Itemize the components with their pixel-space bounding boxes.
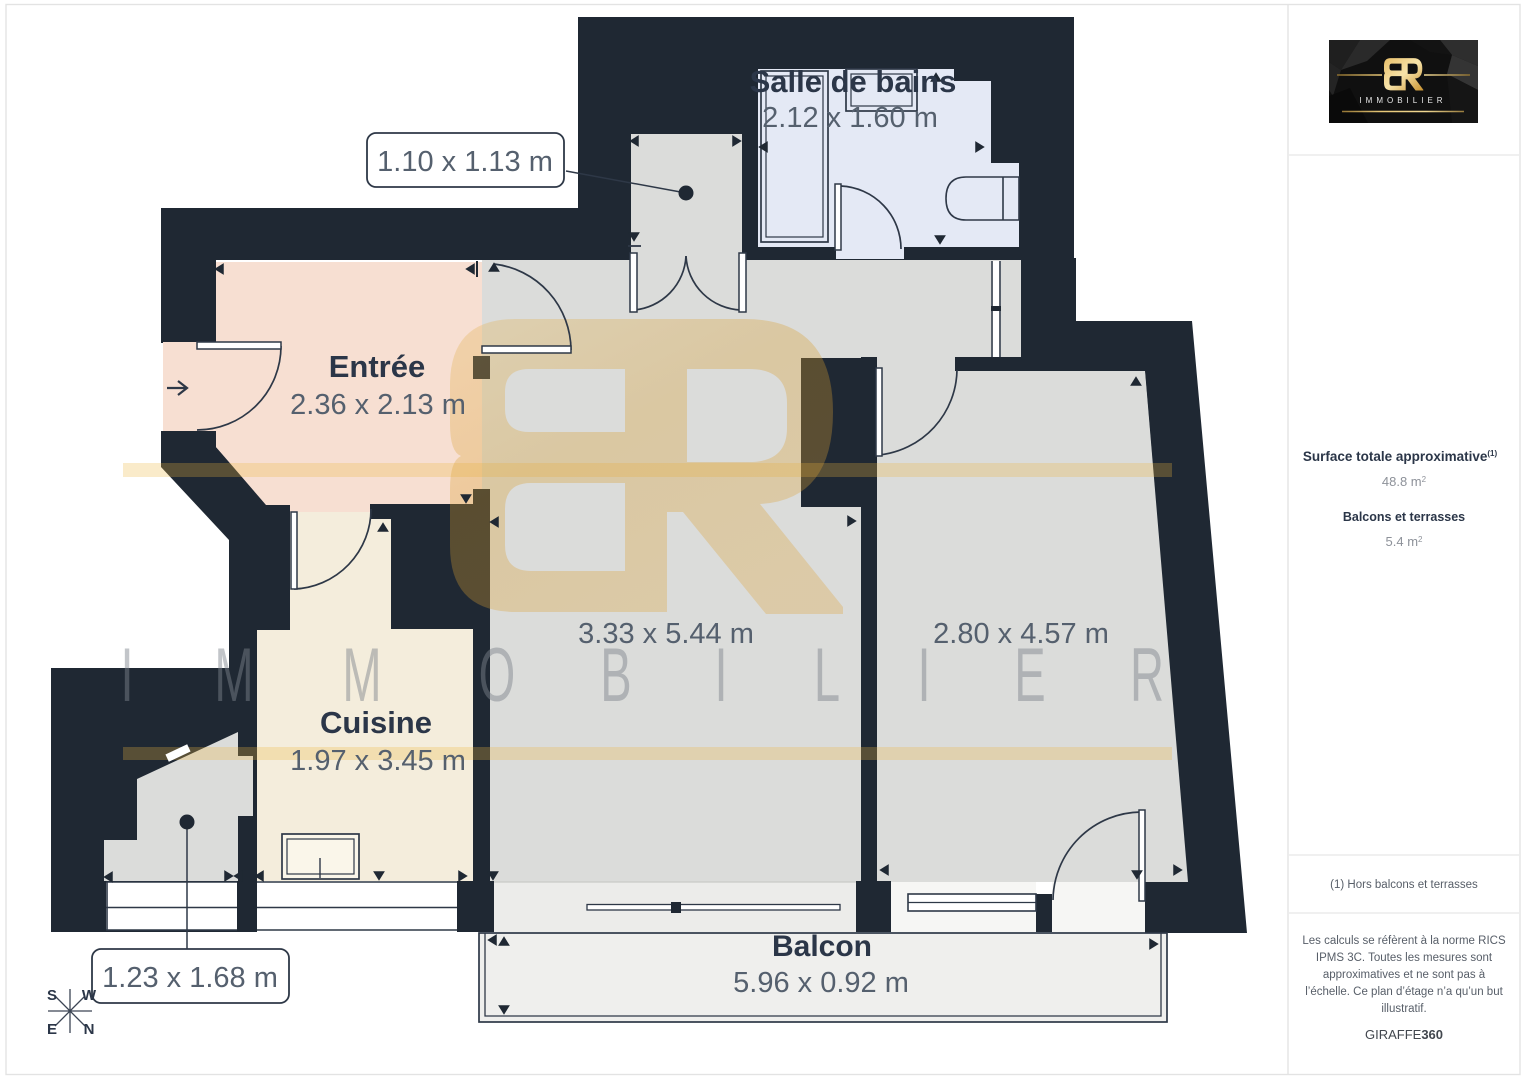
svg-text:5.96 x 0.92 m: 5.96 x 0.92 m: [733, 967, 909, 999]
svg-text:E: E: [47, 1021, 57, 1038]
svg-text:(1) Hors balcons et terrasses: (1) Hors balcons et terrasses: [1330, 879, 1478, 891]
svg-text:W: W: [82, 987, 97, 1004]
svg-text:48.8 m2: 48.8 m2: [1382, 474, 1427, 489]
svg-text:GIRAFFE360: GIRAFFE360: [1365, 1027, 1443, 1042]
svg-text:2.36 x 2.13 m: 2.36 x 2.13 m: [290, 389, 466, 421]
svg-text:1.23 x 1.68 m: 1.23 x 1.68 m: [102, 962, 278, 994]
svg-text:Entrée: Entrée: [329, 349, 425, 384]
svg-text:L: L: [814, 634, 840, 718]
svg-text:N: N: [84, 1021, 95, 1038]
svg-text:illustratif.: illustratif.: [1381, 1003, 1426, 1015]
svg-text:Les calculs se réfèrent à la n: Les calculs se réfèrent à la norme RICS: [1302, 935, 1506, 947]
svg-text:Surface totale approximative(1: Surface totale approximative(1): [1303, 449, 1498, 464]
svg-text:Balcon: Balcon: [772, 930, 872, 963]
svg-text:M: M: [214, 634, 253, 718]
svg-text:Cuisine: Cuisine: [320, 705, 432, 740]
svg-text:1.10 x 1.13 m: 1.10 x 1.13 m: [377, 146, 553, 178]
svg-text:3.33 x 5.44 m: 3.33 x 5.44 m: [578, 618, 754, 650]
svg-text:IMMOBILIER: IMMOBILIER: [1359, 96, 1446, 105]
svg-text:I: I: [120, 634, 133, 718]
svg-text:1.97 x 3.45 m: 1.97 x 3.45 m: [290, 745, 466, 777]
svg-text:approximatives et ne sont pas: approximatives et ne sont pas à: [1323, 969, 1486, 981]
svg-text:Salle de bains: Salle de bains: [750, 64, 957, 99]
svg-text:I: I: [917, 634, 930, 718]
svg-text:S: S: [47, 987, 57, 1004]
svg-text:2.12 x 1.60 m: 2.12 x 1.60 m: [762, 102, 938, 134]
svg-text:5.4 m2: 5.4 m2: [1386, 534, 1424, 549]
svg-text:2.80 x 4.57 m: 2.80 x 4.57 m: [933, 618, 1109, 650]
svg-text:l’échelle. Ce plan d’étage n’a: l’échelle. Ce plan d’étage n’a qu’un but: [1305, 986, 1503, 998]
svg-text:IPMS 3C. Toutes les mesures so: IPMS 3C. Toutes les mesures sont: [1316, 952, 1493, 964]
svg-text:O: O: [479, 634, 516, 718]
svg-text:Balcons et terrasses: Balcons et terrasses: [1343, 510, 1465, 524]
svg-text:R: R: [1130, 634, 1164, 718]
